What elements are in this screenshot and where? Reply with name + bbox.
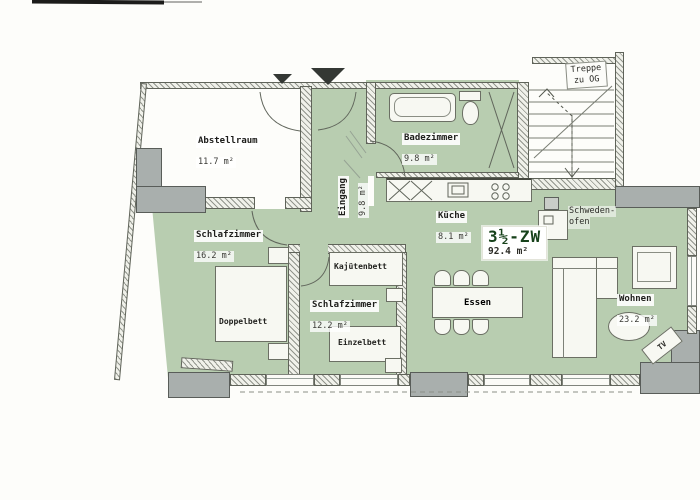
door-arc (260, 92, 300, 131)
floor-plan: Essen TV (0, 0, 700, 500)
room-label-wohnen: Wohnen 23.2 m² (617, 286, 657, 328)
burner (503, 193, 509, 199)
room-label-schlafzimmer-gross: Schlafzimmer 16.2 m² (194, 222, 263, 264)
utility-scribble (344, 131, 366, 178)
stairs-label: Treppe zu OG (565, 61, 607, 90)
door-arc (318, 92, 356, 130)
entry-marker-triangle (273, 74, 292, 84)
door-arc (370, 141, 405, 176)
kajuetenbett-label: Kajütenbett (334, 262, 387, 271)
doppelbett-label: Doppelbett (219, 317, 267, 326)
stair-steps (528, 90, 614, 172)
unit-area: 92.4 m² (488, 246, 541, 257)
sink-basin (452, 186, 464, 194)
schwedenofen-label: Schweden- ofen (568, 206, 616, 229)
cabinet-x (389, 181, 432, 200)
burner (492, 184, 498, 190)
stair-diagonal (534, 86, 612, 158)
unit-title: 3½-ZW 92.4 m² (482, 226, 547, 260)
room-label-abstellraum: Abstellraum 11.7 m² (196, 128, 260, 170)
unit-name: 3½-ZW (488, 228, 541, 246)
stair-walkline (546, 92, 572, 176)
sink (448, 183, 468, 197)
schwedenofen-detail (544, 216, 553, 224)
burner (492, 193, 498, 199)
room-label-kueche: Küche 8.1 m² (436, 203, 471, 245)
einzelbett-label: Einzelbett (338, 338, 386, 347)
room-label-eingang: Eingang 9.8 m² (330, 176, 370, 218)
burner (503, 184, 509, 190)
door-arc (301, 257, 329, 286)
entry-marker-triangle (311, 68, 345, 85)
room-label-badezimmer: Badezimmer 9.8 m² (402, 125, 460, 167)
shower-lines (489, 92, 514, 168)
room-label-schlafzimmer-klein: Schlafzimmer 12.2 m² (310, 292, 379, 334)
